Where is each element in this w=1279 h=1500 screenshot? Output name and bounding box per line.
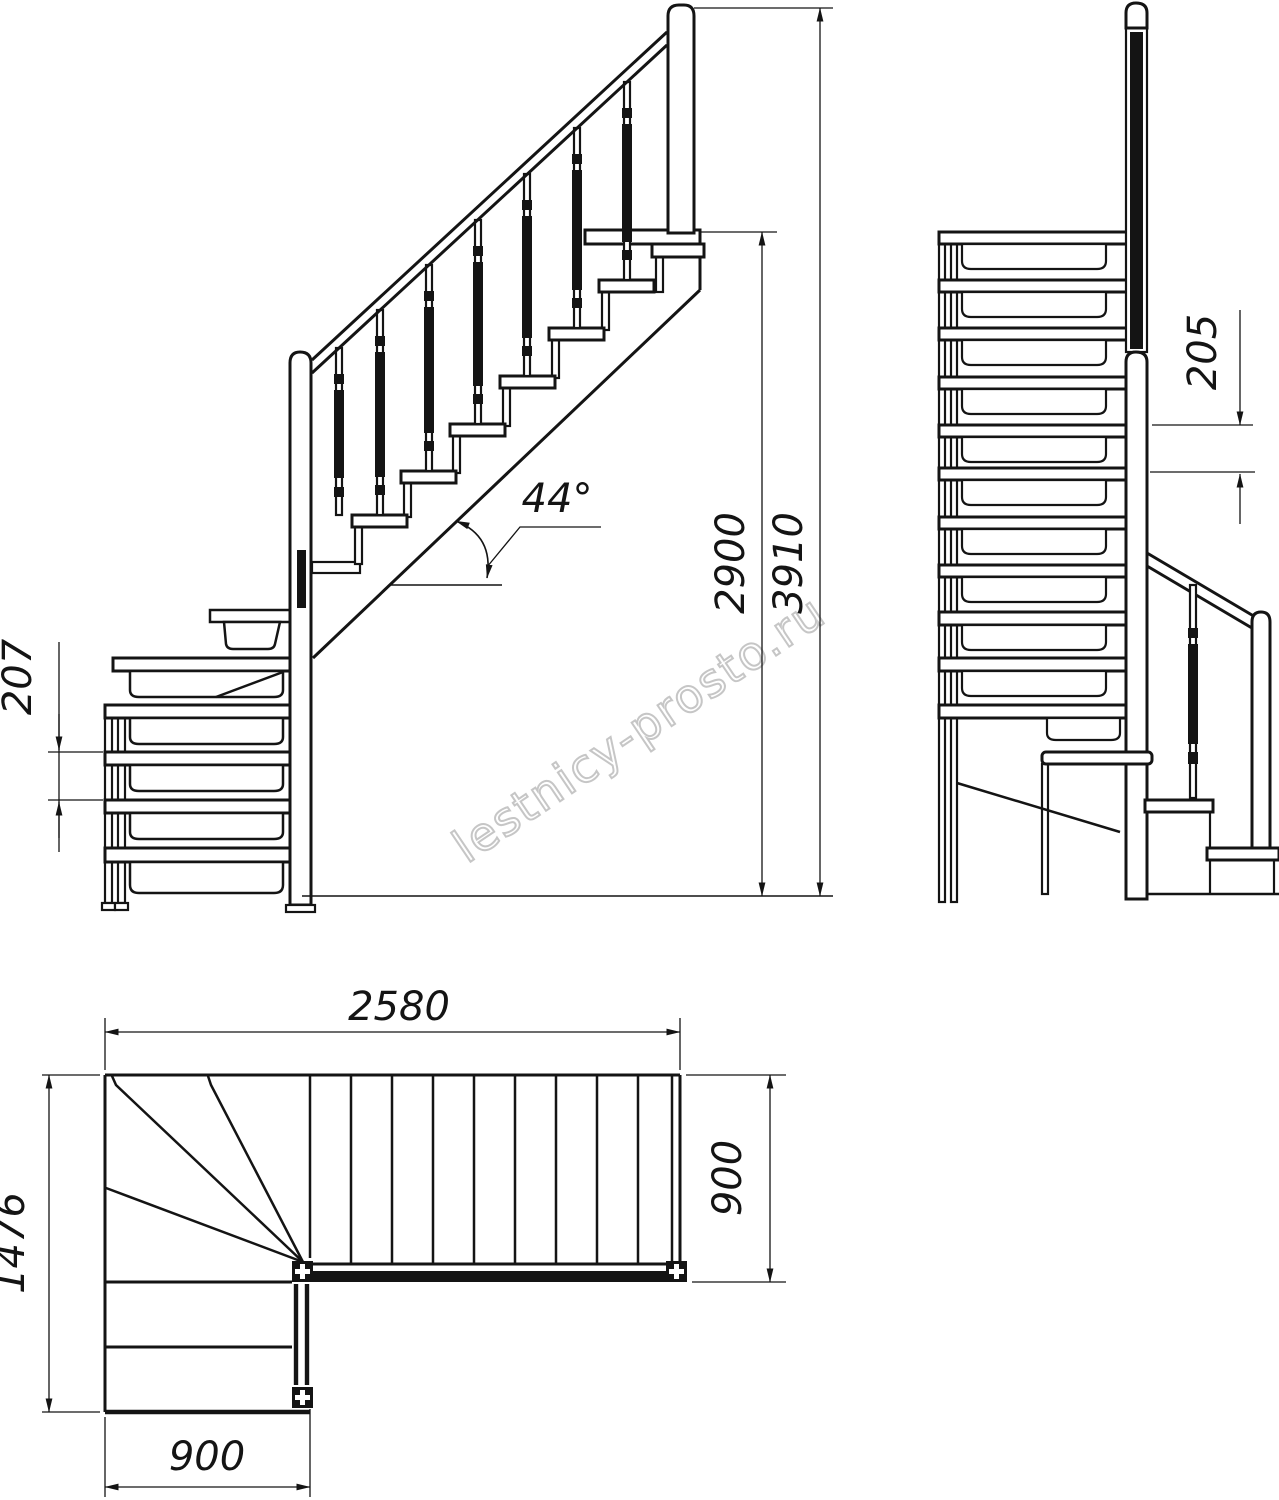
dim-label-900-right: 900	[705, 1140, 751, 1216]
dim-label-1476: 1476	[0, 1192, 34, 1294]
dim-label-205: 205	[1180, 314, 1226, 390]
dim-label-2580: 2580	[348, 984, 450, 1030]
newel-post-symbol-bottom	[292, 1387, 313, 1408]
front-elevation-view: 205	[939, 3, 1279, 902]
plan-handrail	[296, 1264, 668, 1385]
staircase-drawing-canvas: lestnicy-prosto.ru	[0, 0, 1279, 1500]
newel-post-symbol-right	[666, 1261, 687, 1282]
dim-label-2900: 2900	[708, 512, 754, 614]
top-post-cap	[1126, 3, 1147, 28]
dimension-step-rise-side: 207	[0, 638, 103, 852]
plan-lower-flight	[105, 1282, 310, 1412]
dimension-lower-flight-width: 900	[105, 1409, 310, 1497]
stringer	[313, 290, 700, 658]
top-newel-post	[668, 5, 694, 233]
plan-winder-fan	[106, 1076, 303, 1262]
technical-drawing-page: lestnicy-prosto.ru	[0, 0, 1279, 1500]
right-newel-post	[1252, 612, 1270, 848]
dimension-total-height: 3910	[694, 8, 833, 896]
dim-label-44deg: 44°	[522, 476, 593, 522]
upper-railing-edge	[1126, 3, 1147, 352]
middle-newel-post	[290, 352, 311, 905]
upper-flight-steps	[312, 230, 704, 573]
watermark-text: lestnicy-prosto.ru	[443, 584, 835, 873]
winder-box-steps	[102, 610, 311, 910]
plan-treads	[310, 1075, 638, 1263]
side-elevation-view: 207 44° 2900 3910	[0, 5, 833, 912]
handrail	[312, 32, 667, 373]
front-newel-post	[1126, 352, 1147, 899]
dimension-total-depth: 1476	[0, 1075, 100, 1412]
lower-steps	[957, 752, 1279, 894]
dimension-step-rise-front: 205	[1150, 310, 1255, 524]
front-stringer-line	[957, 783, 1120, 832]
plan-view: 2580 900 1476 900	[0, 984, 786, 1497]
dimension-total-run: 2580	[105, 984, 680, 1070]
front-steps	[939, 232, 1134, 740]
newel-post-symbol-corner	[292, 1261, 313, 1282]
dim-label-3910: 3910	[766, 512, 812, 614]
dim-label-207: 207	[0, 638, 41, 715]
dimension-incline-angle: 44°	[390, 476, 601, 585]
dimension-upper-flight-width: 900	[686, 1075, 786, 1282]
dim-label-900-bottom: 900	[169, 1434, 245, 1480]
